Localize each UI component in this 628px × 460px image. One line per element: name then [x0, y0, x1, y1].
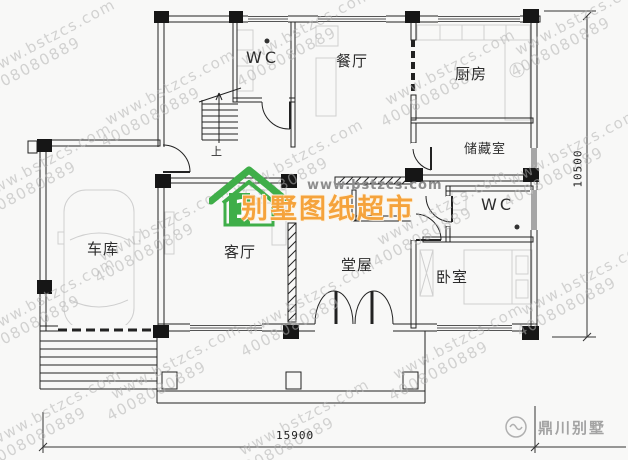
room-label-living: 客厅 [224, 241, 256, 262]
room-label-garage: 车库 [87, 238, 119, 259]
floor-plan-page: www.bstzcs.com4008080889 www.bstzcs.com4… [0, 0, 628, 460]
dingchuan-logo: 鼎川别墅 [503, 414, 606, 440]
dimension-height-label: 10500 [572, 149, 585, 189]
room-label-dining: 餐厅 [336, 50, 368, 71]
dingchuan-logo-icon [503, 414, 529, 440]
bstzcs-logo: 1 www.bstzcs.com 别墅图纸超市 [205, 163, 467, 235]
dingchuan-logo-text: 鼎川别墅 [538, 417, 606, 438]
room-label-wc-top: WC [246, 48, 279, 67]
room-label-wc-right: WC [481, 195, 514, 214]
dimension-width-label: 15900 [276, 429, 314, 442]
room-label-hall: 堂屋 [341, 254, 373, 275]
stairs-up-label: 上 [211, 143, 223, 159]
room-label-kitchen: 厨房 [455, 63, 487, 84]
room-label-bedroom: 卧室 [436, 266, 468, 287]
room-label-storage: 储藏室 [464, 138, 506, 157]
logo-title-text: 别墅图纸超市 [241, 187, 415, 226]
